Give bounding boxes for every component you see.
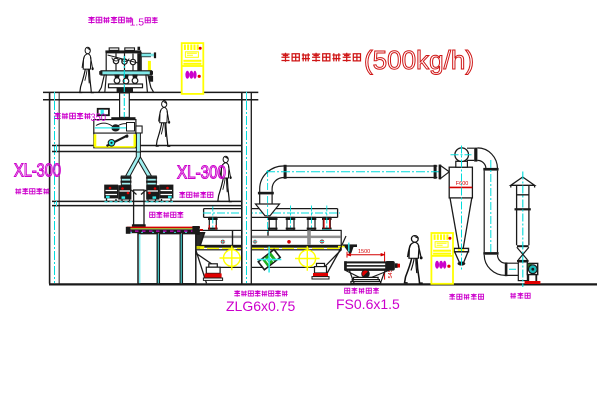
svg-text:F600: F600 [456, 181, 469, 187]
svg-text:XL-300: XL-300 [177, 162, 226, 183]
svg-text:1500: 1500 [358, 249, 370, 255]
svg-text:FS0.6x1.5: FS0.6x1.5 [336, 296, 400, 312]
svg-text:XL-300: XL-300 [14, 160, 61, 181]
svg-text:ZLG6x0.75: ZLG6x0.75 [226, 298, 295, 314]
svg-text:(500kg/h): (500kg/h) [364, 45, 474, 75]
svg-text:1.5: 1.5 [130, 17, 145, 29]
svg-text:350: 350 [91, 112, 107, 124]
